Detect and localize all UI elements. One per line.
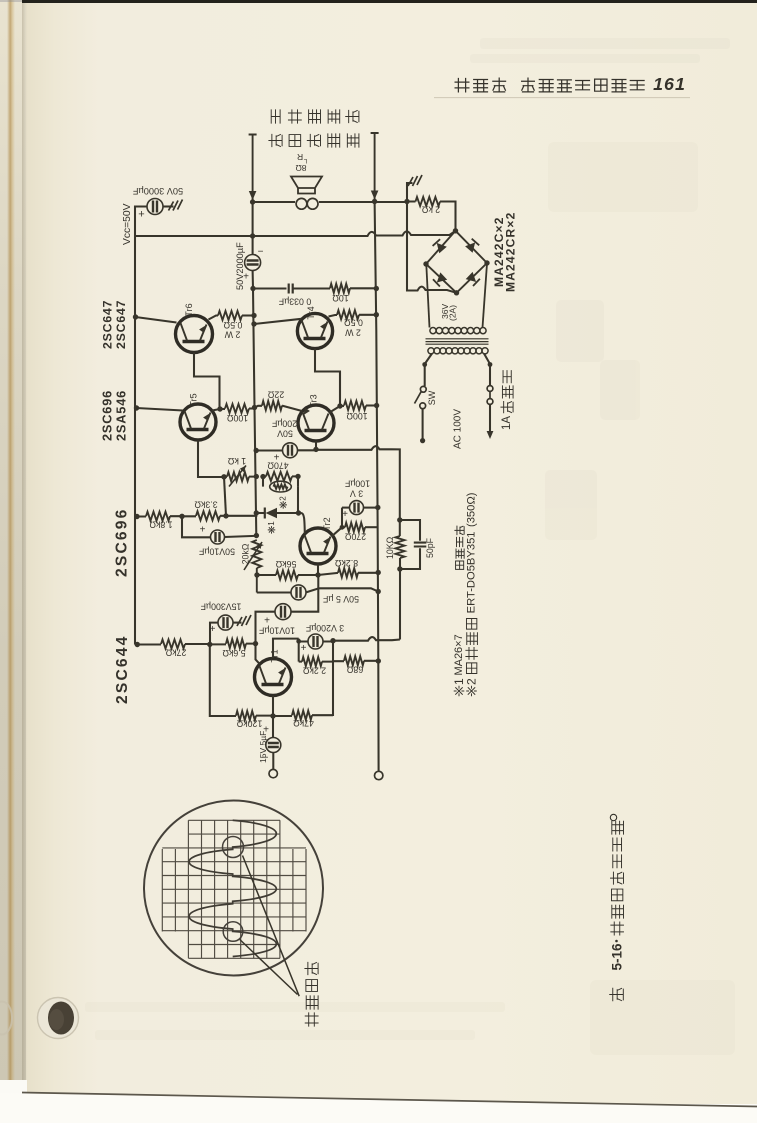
svg-text:2 W: 2 W: [224, 330, 240, 340]
svg-text:50V10µF: 50V10µF: [198, 547, 235, 557]
svg-text:+: +: [264, 616, 270, 627]
svg-text:50pF: 50pF: [425, 537, 435, 558]
svg-text:ERT-DO5BY351: ERT-DO5BY351: [466, 531, 478, 613]
svg-text:200µF: 200µF: [271, 419, 297, 429]
svg-text:68Ω: 68Ω: [346, 665, 363, 675]
svg-text:10V10µF: 10V10µF: [258, 626, 295, 636]
svg-text:(2A): (2A): [448, 305, 458, 321]
svg-text:−: −: [258, 247, 264, 258]
svg-text:0.5Ω: 0.5Ω: [344, 318, 363, 328]
svg-text:2SC696: 2SC696: [114, 507, 131, 577]
svg-text:AC 100V: AC 100V: [453, 409, 464, 449]
svg-text:15V 5µF: 15V 5µF: [258, 731, 268, 763]
svg-text:50V2000µF: 50V2000µF: [235, 242, 245, 290]
svg-text:3.3kΩ: 3.3kΩ: [194, 500, 218, 510]
svg-text:Vcc=50V: Vcc=50V: [122, 203, 133, 245]
svg-text:270Ω: 270Ω: [344, 532, 366, 542]
svg-text:Tr3: Tr3: [309, 394, 319, 407]
svg-text:3 V200µF: 3 V200µF: [305, 623, 344, 633]
svg-text:Tr5: Tr5: [189, 393, 199, 406]
svg-text:+: +: [301, 643, 307, 654]
svg-text:10Ω: 10Ω: [332, 293, 349, 303]
svg-text:Tr4: Tr4: [306, 306, 316, 319]
svg-text:1 kΩ: 1 kΩ: [227, 456, 246, 466]
svg-text:2: 2: [279, 496, 288, 501]
svg-text:100µF: 100µF: [344, 479, 370, 489]
svg-text:Tr2: Tr2: [322, 517, 332, 530]
svg-text:2SC647: 2SC647: [114, 300, 128, 349]
svg-text:5.6kΩ: 5.6kΩ: [222, 648, 246, 658]
svg-text:5-16: 5-16: [610, 943, 625, 971]
svg-text:50V: 50V: [277, 429, 293, 439]
svg-text:+: +: [210, 624, 216, 635]
svg-text:8Ω: 8Ω: [295, 163, 306, 173]
svg-text:100Ω: 100Ω: [346, 411, 368, 421]
svg-text:MA242CR×2: MA242CR×2: [504, 212, 518, 293]
svg-text:+: +: [200, 525, 206, 536]
svg-text:1: 1: [267, 521, 276, 526]
svg-text:10KΩ: 10KΩ: [385, 536, 395, 559]
svg-text:56kΩ: 56kΩ: [275, 559, 296, 569]
svg-text:MA26×7: MA26×7: [453, 634, 465, 675]
svg-text:Tr6: Tr6: [184, 303, 194, 316]
svg-text:2 W: 2 W: [344, 328, 360, 338]
svg-text:2SC644: 2SC644: [114, 634, 131, 704]
svg-text:2: 2: [465, 678, 479, 685]
svg-text:100Ω: 100Ω: [226, 413, 248, 423]
svg-text:47kΩ: 47kΩ: [293, 718, 314, 728]
svg-text:2 2kΩ: 2 2kΩ: [302, 666, 326, 676]
svg-text:161: 161: [653, 74, 686, 94]
svg-text:27kΩ: 27kΩ: [165, 648, 186, 658]
svg-text:2 kΩ: 2 kΩ: [421, 205, 440, 215]
svg-text:2SC647: 2SC647: [101, 300, 115, 349]
svg-text:3 V: 3 V: [350, 489, 363, 499]
svg-text:120kΩ: 120kΩ: [236, 719, 262, 729]
svg-text:50V 3000µF: 50V 3000µF: [132, 186, 183, 196]
svg-text:2SC696: 2SC696: [100, 390, 115, 441]
svg-text:1.8kΩ: 1.8kΩ: [149, 520, 173, 530]
svg-text:2SA546: 2SA546: [114, 390, 129, 441]
svg-text:SW: SW: [427, 390, 437, 405]
svg-text:470Ω: 470Ω: [267, 461, 289, 471]
svg-text:(350Ω): (350Ω): [466, 492, 478, 527]
svg-text:0 033µF: 0 033µF: [278, 297, 311, 307]
svg-text:8.2kΩ: 8.2kΩ: [334, 558, 358, 568]
svg-text:22Ω: 22Ω: [267, 390, 284, 400]
svg-text:50V 5 µF: 50V 5 µF: [322, 594, 359, 604]
svg-text:1A: 1A: [501, 416, 513, 430]
svg-text:+: +: [138, 209, 144, 221]
svg-text:15V300µF: 15V300µF: [200, 602, 241, 612]
svg-text:Tr1: Tr1: [270, 649, 280, 662]
svg-text:20kΩ: 20kΩ: [241, 543, 251, 564]
svg-text:R: R: [297, 152, 303, 162]
svg-text:0.5Ω: 0.5Ω: [223, 320, 242, 330]
